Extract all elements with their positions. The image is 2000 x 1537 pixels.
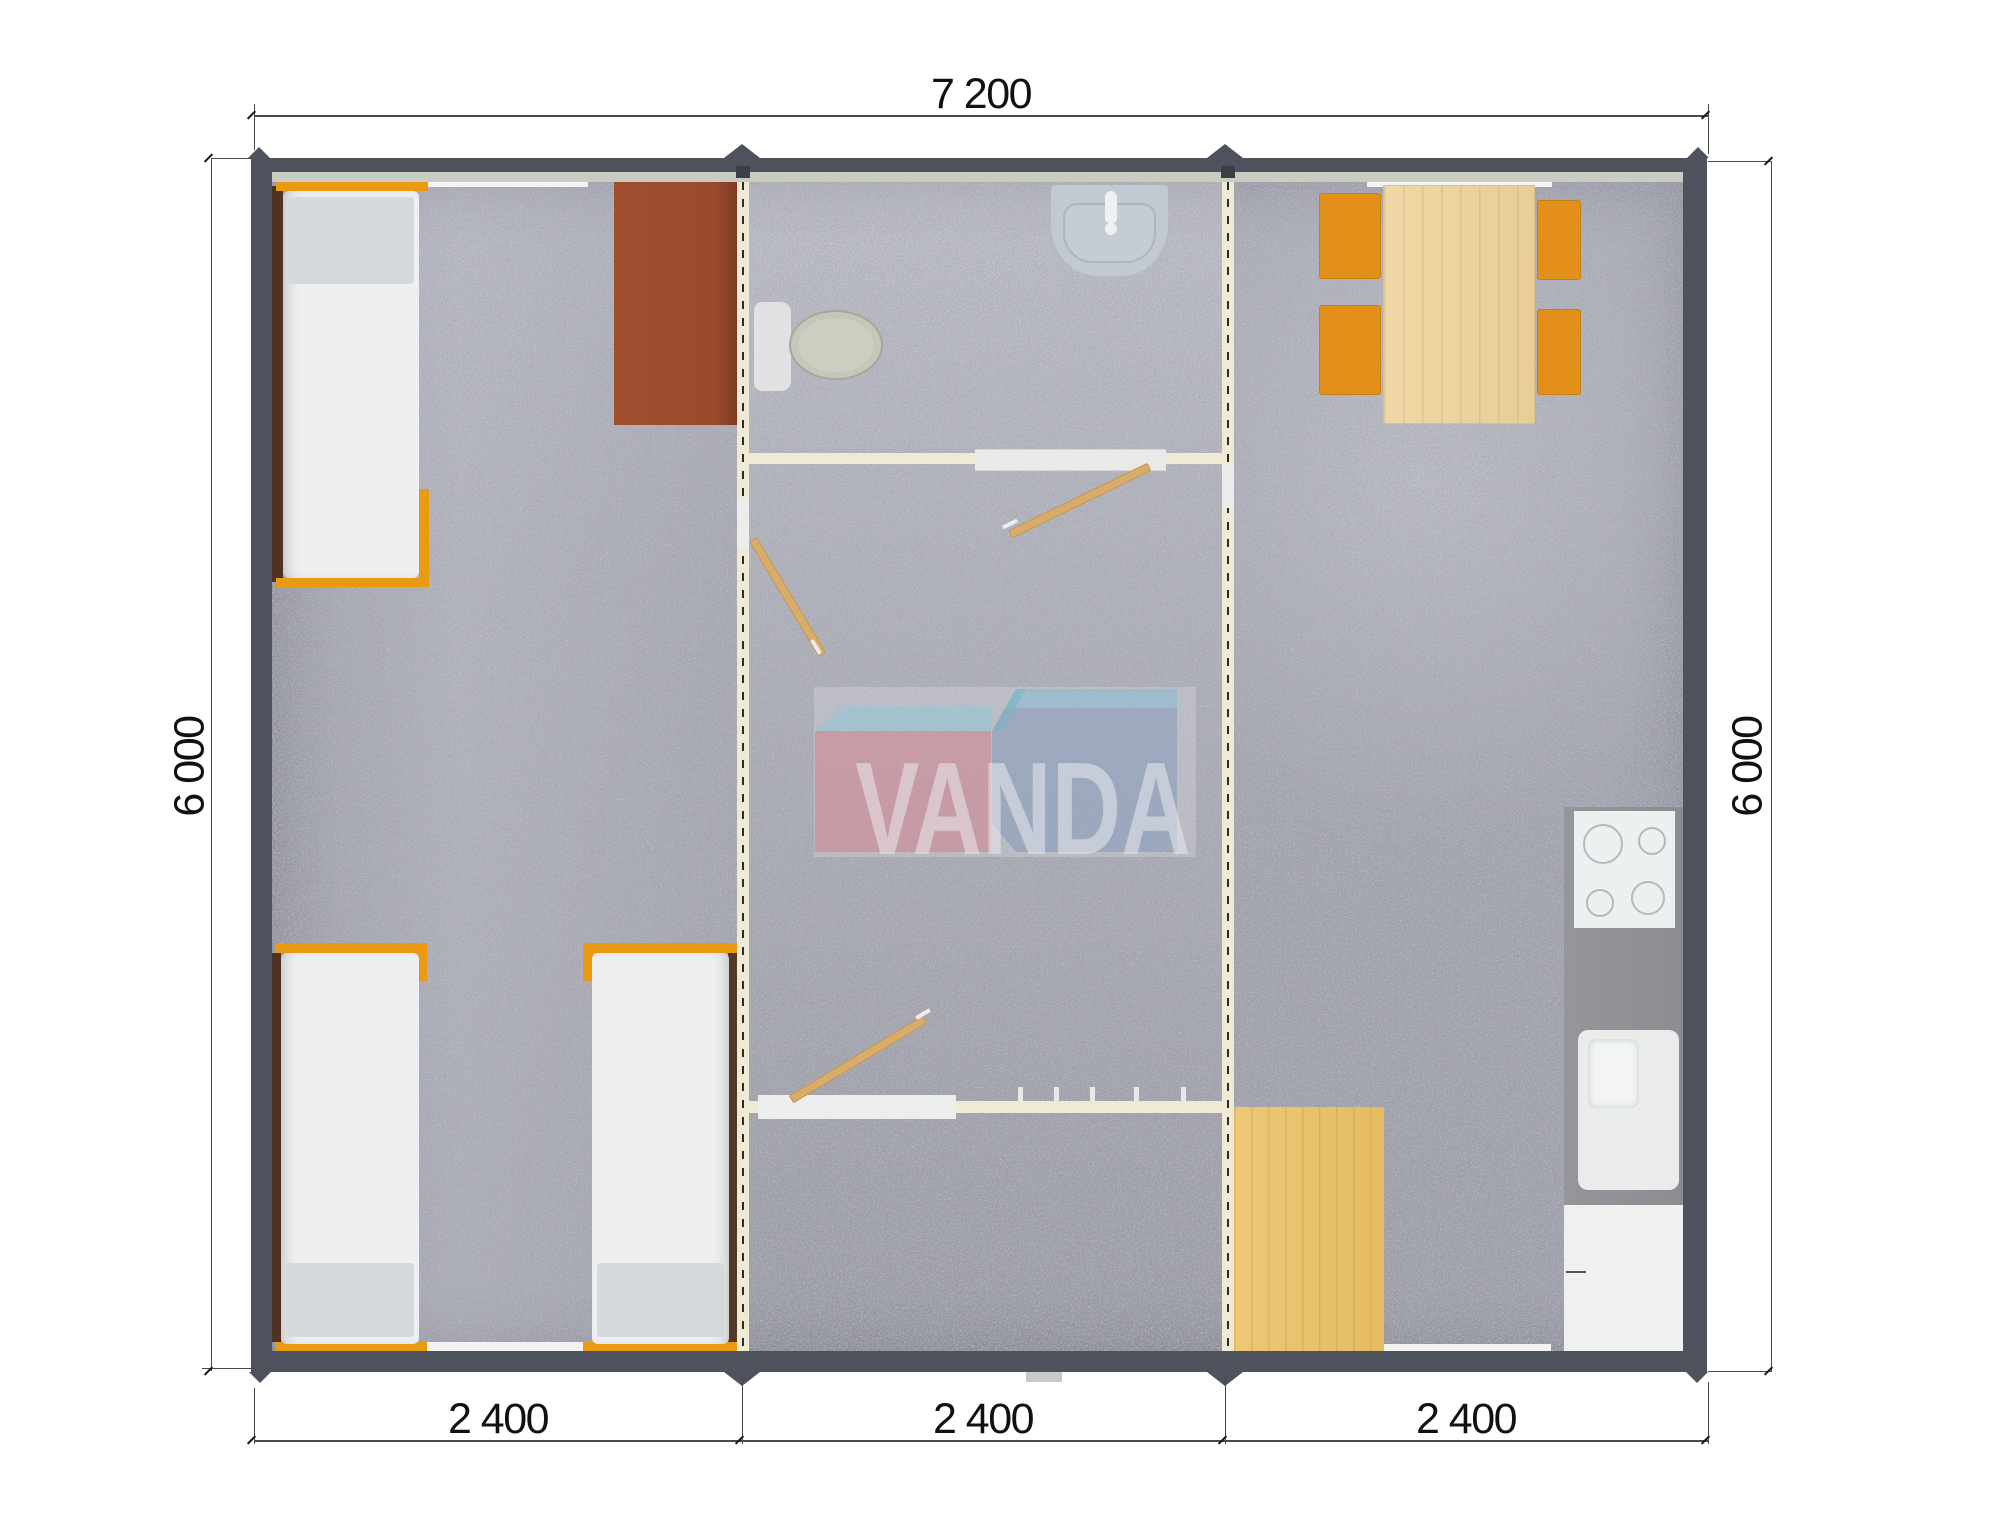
svg-text:VANDA: VANDA bbox=[855, 735, 1190, 862]
